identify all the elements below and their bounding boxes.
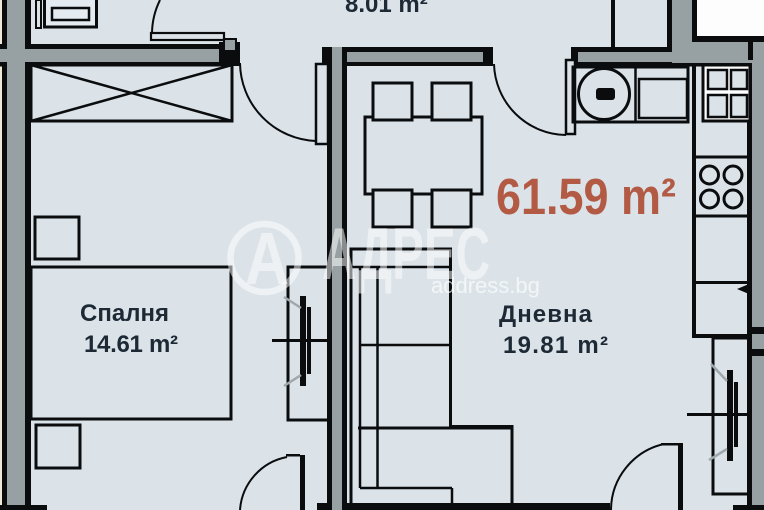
svg-text:address.bg: address.bg <box>431 273 540 298</box>
svg-text:Дневна: Дневна <box>499 301 593 328</box>
svg-text:Спалня: Спалня <box>80 300 169 327</box>
svg-text:14.61 m²: 14.61 m² <box>84 331 178 358</box>
svg-text:61.59 m²: 61.59 m² <box>496 168 676 225</box>
svg-text:8.01 m²: 8.01 m² <box>345 0 428 18</box>
svg-text:А: А <box>245 217 289 300</box>
svg-text:19.81 m²: 19.81 m² <box>503 332 608 359</box>
